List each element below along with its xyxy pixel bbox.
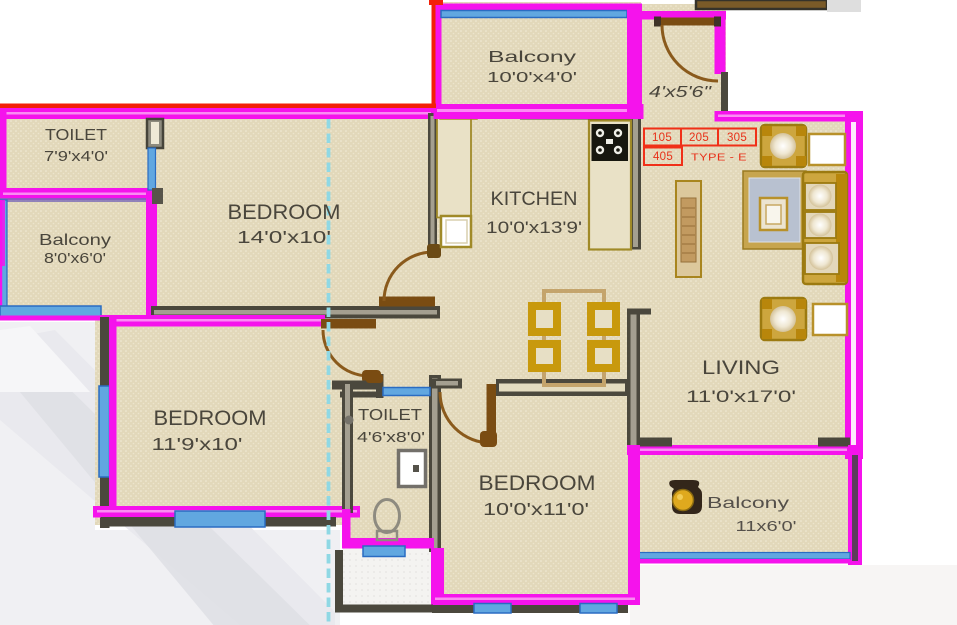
svg-text:8'0'x6'0': 8'0'x6'0': [44, 251, 106, 267]
svg-text:LIVING: LIVING: [702, 358, 780, 379]
svg-text:305: 305: [727, 132, 747, 144]
svg-text:205: 205: [689, 132, 709, 144]
svg-text:10'0'x13'9': 10'0'x13'9': [486, 218, 582, 237]
svg-text:BEDROOM: BEDROOM: [154, 407, 267, 430]
svg-text:10'0'x11'0': 10'0'x11'0': [483, 499, 589, 519]
svg-text:KITCHEN: KITCHEN: [491, 189, 578, 210]
svg-text:BEDROOM: BEDROOM: [228, 201, 341, 224]
svg-text:Balcony: Balcony: [488, 49, 576, 66]
svg-text:4'6'x8'0': 4'6'x8'0': [357, 430, 425, 446]
svg-text:4'x5'6": 4'x5'6": [649, 84, 713, 101]
svg-text:Balcony: Balcony: [39, 232, 111, 249]
svg-text:BEDROOM: BEDROOM: [479, 472, 596, 495]
svg-text:11'9'x10': 11'9'x10': [152, 434, 243, 454]
svg-text:11x6'0': 11x6'0': [736, 519, 797, 535]
svg-text:11'0'x17'0': 11'0'x17'0': [686, 387, 796, 406]
svg-text:TYPE - E: TYPE - E: [691, 152, 747, 164]
svg-text:405: 405: [653, 151, 673, 163]
svg-text:Balcony: Balcony: [707, 495, 789, 512]
svg-text:7'9'x4'0': 7'9'x4'0': [44, 149, 108, 165]
svg-text:14'0'x10': 14'0'x10': [237, 227, 331, 247]
svg-text:10'0'x4'0': 10'0'x4'0': [487, 70, 577, 86]
svg-text:TOILET: TOILET: [45, 127, 107, 144]
svg-text:105: 105: [652, 132, 672, 144]
svg-text:TOILET: TOILET: [358, 407, 423, 424]
